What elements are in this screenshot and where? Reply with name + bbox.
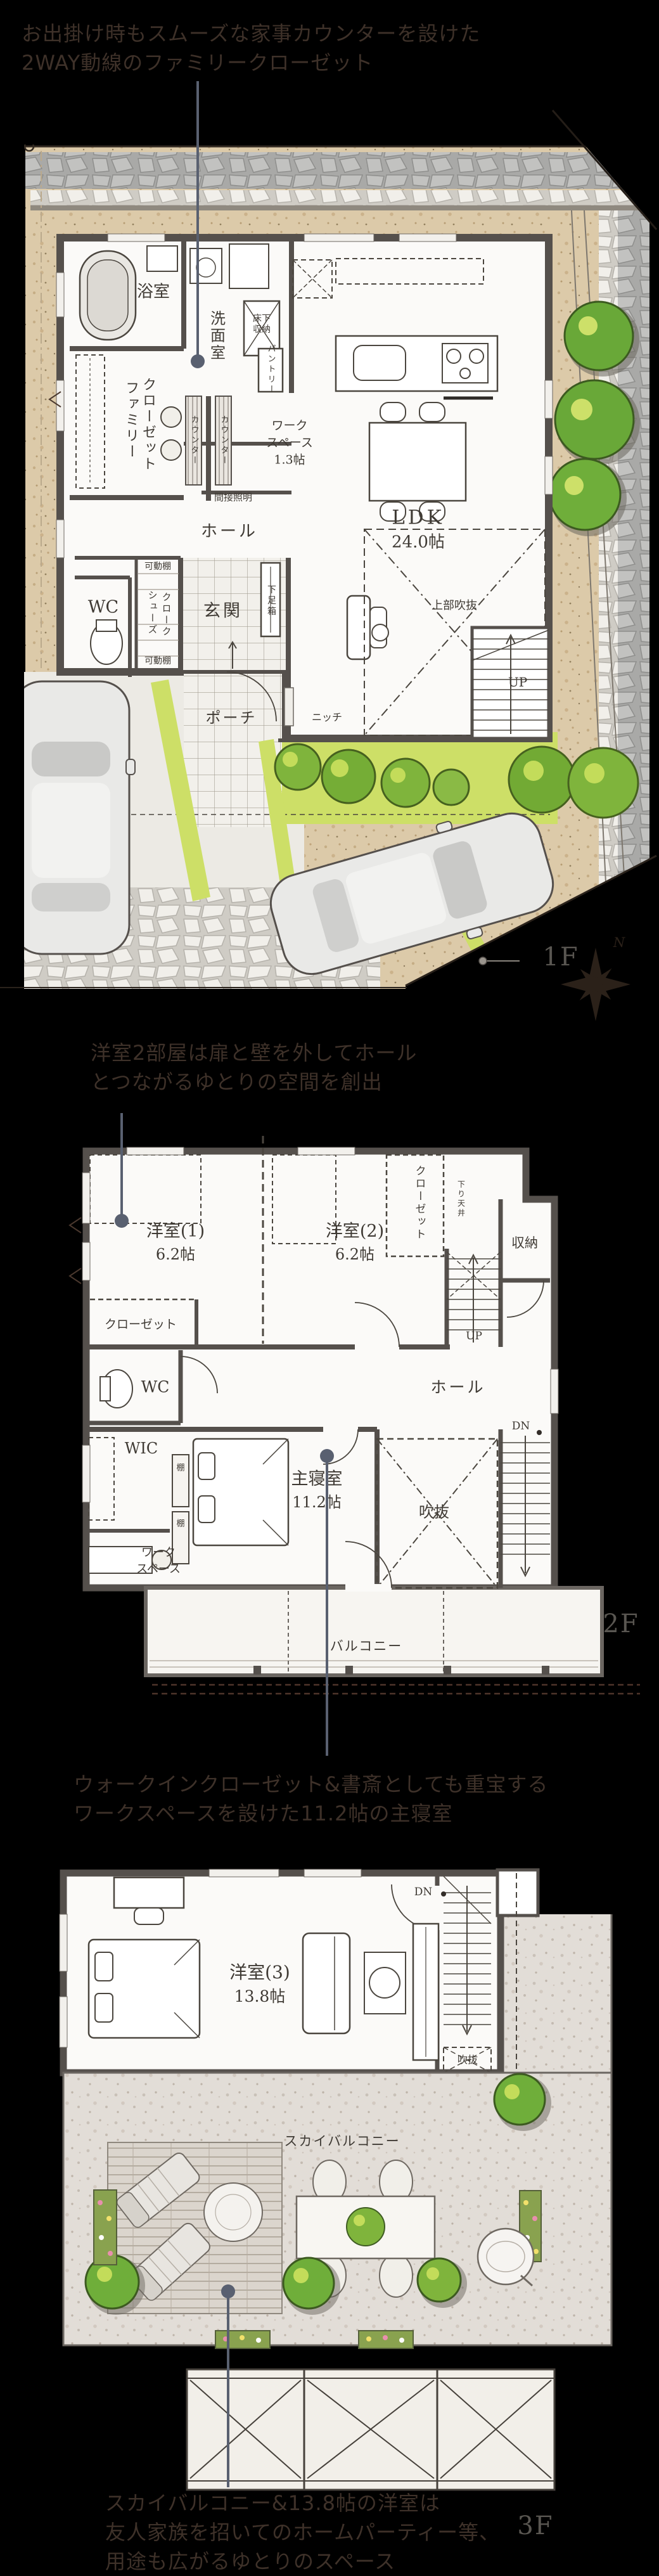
room-label-shelf-1: 棚: [176, 1461, 184, 1473]
house-1f: [49, 234, 553, 738]
room-label-workspace-1f: ワーク スペース 1.3帖: [266, 416, 313, 468]
room-label-movable-shelf-bottom: 可動棚: [144, 654, 171, 667]
car-icon-1: [7, 681, 135, 954]
floor-label-2f: 2F: [603, 1609, 639, 1639]
room-label-shoes-closet-2: クローク: [160, 592, 174, 638]
compass-north-label: N: [613, 935, 625, 950]
floorplan-page: { "annotations": { "a1": {"lines": ["お出掛…: [0, 0, 659, 2573]
annotation-master: ウォークインクローゼット&書斎としても重宝する ワークスペースを設けた11.2帖…: [74, 1770, 548, 1828]
room-label-underfloor: 床下収納: [253, 314, 271, 335]
room-label-counter-1: カウンター: [188, 415, 200, 466]
floor-3f-section: 洋室(3) 13.8帖 DN 吹抜 スカイバルコニー 3F: [0, 1838, 659, 2573]
leader-dot-3: [320, 1449, 334, 1463]
room-label-wic: WIC: [125, 1439, 158, 1457]
leader-line-3: [326, 1462, 328, 1756]
leader-line-4: [227, 2297, 229, 2487]
leader-dot-4: [221, 2284, 235, 2298]
room-label-dn-2f: DN: [512, 1420, 530, 1433]
floorplan-2f: [0, 1090, 659, 1711]
room-label-void-2f: 吹抜: [419, 1500, 449, 1522]
floor-label-1f: 1F: [542, 943, 579, 972]
room-label-entrance: 玄関: [203, 597, 243, 622]
room-label-bedroom2: 洋室(2) 6.2帖: [326, 1217, 384, 1264]
sofa-3f: [303, 1933, 350, 2033]
room-label-bedroom1: 洋室(1) 6.2帖: [146, 1217, 205, 1264]
leader-line-2: [120, 1113, 123, 1216]
bed-3f: [89, 1940, 200, 2038]
room-label-indirect-light: 間接照明: [214, 491, 252, 504]
floor-label-3f: 3F: [517, 2511, 553, 2541]
leader-dot-2: [115, 1214, 129, 1228]
room-label-dn-3f: DN: [414, 1886, 433, 1898]
floor-2f-section: 洋室(1) 6.2帖 洋室(2) 6.2帖 クローゼット クローゼット 下り天井…: [0, 1090, 659, 1711]
room-label-shoes-closet-1: シューズ: [146, 590, 160, 636]
room-label-hall-2f: ホール: [430, 1375, 485, 1398]
room-label-up-2f: UP: [466, 1330, 482, 1343]
annotation-2f: 洋室2部屋は扉と壁を外してホール とつながるゆとりの空間を創出: [91, 1038, 417, 1097]
room-label-porch: ポーチ: [206, 705, 257, 728]
room-label-balcony: バルコニー: [330, 1636, 403, 1655]
floorplan-3f: [0, 1838, 659, 2573]
papasan-chair: [478, 2229, 534, 2286]
room-label-up-1f: UP: [508, 674, 527, 690]
room-label-workspace-2f: ワーク スペース: [136, 1543, 181, 1576]
room-label-lowered-ceiling: 下り天井: [456, 1180, 467, 1218]
leader-line-1: [196, 81, 199, 356]
room-label-pantry: パントリー: [265, 344, 277, 395]
leader-dot-1: [191, 354, 205, 368]
room-label-family-closet-2: クローゼット: [138, 377, 158, 472]
room-label-shelf-2: 棚: [176, 1517, 184, 1529]
room-label-washroom: 洗面室: [206, 311, 228, 362]
room-label-closet-2f: クローゼット: [105, 1315, 177, 1332]
room-label-wc-2f: WC: [141, 1378, 170, 1396]
room-label-hall-1f: ホール: [201, 518, 258, 542]
room-label-master-bedroom: 主寝室 11.2帖: [291, 1465, 343, 1512]
room-label-sky-balcony: スカイバルコニー: [284, 2131, 400, 2150]
sky-balcony: [63, 2073, 611, 2348]
room-label-closet-2f-right: クローゼット: [412, 1165, 428, 1241]
room-label-wc-1f: WC: [88, 598, 118, 617]
floorplan-1f: [0, 82, 659, 1033]
room-label-bath: 浴室: [137, 279, 170, 302]
room-label-shoe-box: 下足箱: [265, 585, 278, 617]
floor-1f-section: 浴室 洗面室 床下収納 パントリー カウンター カウンター ファミリー クローゼ…: [0, 82, 659, 1040]
room-label-niche: ニッチ: [312, 709, 342, 724]
annotation-1f: お出掛け時もスムーズな家事カウンターを設けた 2WAY動線のファミリークローゼッ…: [22, 19, 480, 77]
pergola: [187, 2369, 554, 2490]
room-label-movable-shelf-top: 可動棚: [144, 560, 171, 572]
balcony-2f: [146, 1588, 602, 1675]
house-3f: [60, 1869, 611, 2073]
room-label-bedroom3: 洋室(3) 13.8帖: [229, 1959, 290, 2007]
room-label-counter-2: カウンター: [218, 415, 230, 466]
room-label-void-above: 上部吹抜: [432, 596, 477, 613]
bed-master: [193, 1439, 288, 1545]
room-label-ldk: LDK 24.0帖: [392, 506, 445, 553]
room-label-void-3f: 吹抜: [457, 2051, 478, 2066]
annotation-sky-balcony: スカイバルコニー&13.8帖の洋室は 友人家族を招いてのホームパーティー等、 用…: [105, 2489, 500, 2576]
round-table: [204, 2183, 262, 2241]
room-label-storage-2f: 収納: [511, 1233, 538, 1252]
